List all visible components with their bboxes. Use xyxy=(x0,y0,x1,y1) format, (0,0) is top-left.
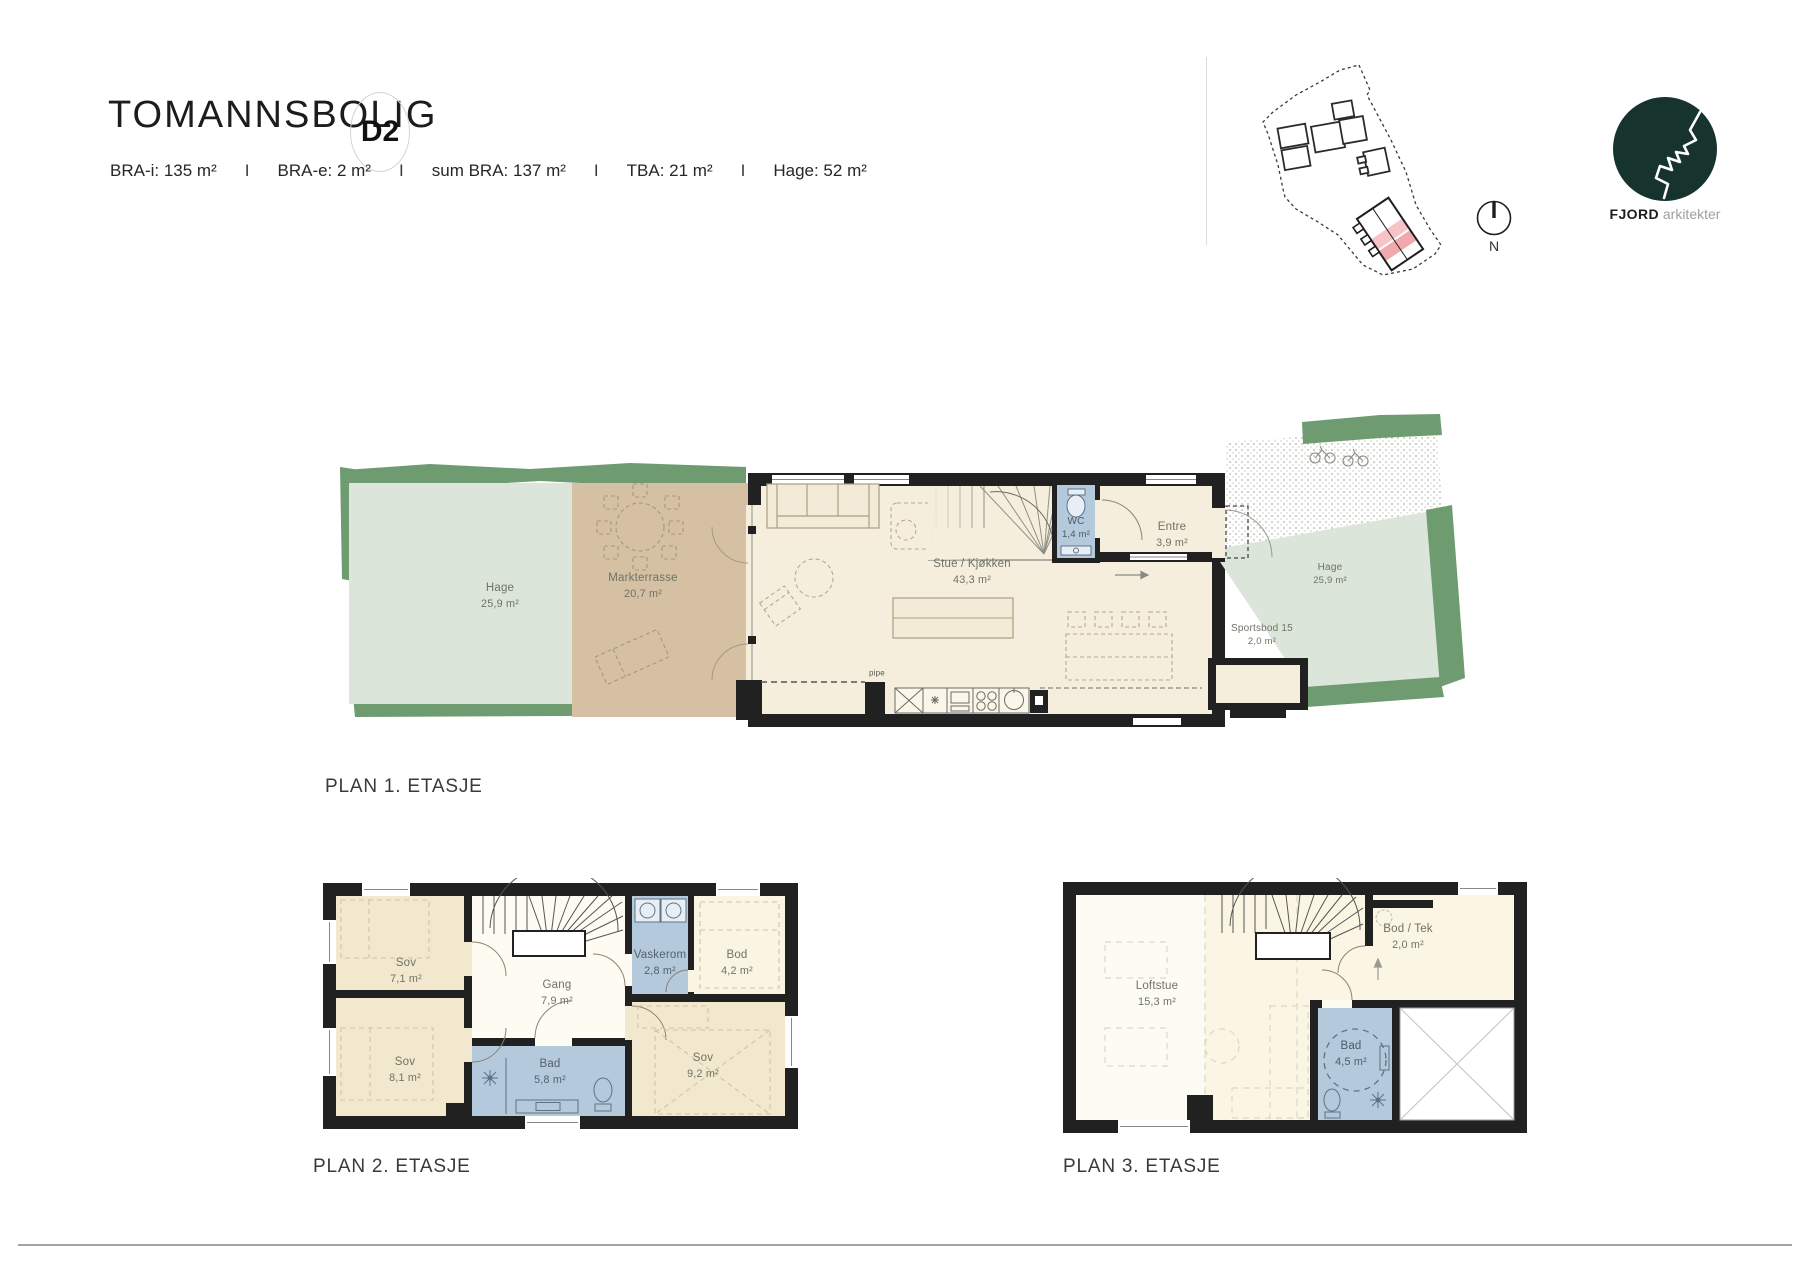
washer-dryer xyxy=(635,899,686,922)
fjord-logo-icon xyxy=(1612,96,1718,202)
room-label-bod-tek: Bod / Tek2,0 m² xyxy=(1383,922,1433,952)
unit-badge: D2 xyxy=(350,92,410,172)
spec-separator: I xyxy=(399,161,404,181)
room-label-hage-right: Hage25,9 m² xyxy=(1313,561,1347,587)
spec-bra-i: BRA-i: 135 m² xyxy=(110,161,217,181)
room-label-sov3: Sov9,2 m² xyxy=(687,1051,719,1081)
room-label-sov2: Sov8,1 m² xyxy=(389,1055,421,1085)
plan1: Hage25,9 m² Markterrasse20,7 m² Stue / K… xyxy=(340,400,1465,735)
spec-separator: I xyxy=(741,161,746,181)
room-label-entre: Entre3,9 m² xyxy=(1156,520,1188,550)
plan1-drawing xyxy=(340,400,1465,735)
footer-divider xyxy=(18,1244,1792,1246)
plan1-title: PLAN 1. ETASJE xyxy=(325,776,483,798)
logo-suffix: arkitekter xyxy=(1663,206,1721,222)
plan-sheet: TOMANNSBOLIG D2 BRA-i: 135 m² I BRA-e: 2… xyxy=(0,0,1810,1280)
spec-separator: I xyxy=(594,161,599,181)
plan3-drawing xyxy=(1060,878,1530,1138)
unit-badge-label: D2 xyxy=(361,115,399,149)
spec-sum-bra: sum BRA: 137 m² xyxy=(432,161,566,181)
room-label-sov1: Sov7,1 m² xyxy=(390,956,422,986)
annotation-pipe: pipe xyxy=(869,669,885,680)
room-label-markterrasse: Markterrasse20,7 m² xyxy=(608,571,678,601)
plan2-title: PLAN 2. ETASJE xyxy=(313,1156,471,1178)
room-label-hage-left: Hage25,9 m² xyxy=(481,581,519,611)
plan2: Sov7,1 m² Gang7,9 m² Vaskerom2,8 m² Bod4… xyxy=(320,878,805,1136)
room-label-stue-kjokken: Stue / Kjøkken43,3 m² xyxy=(933,557,1011,587)
room-label-sportsbod: Sportsbod 152,0 m² xyxy=(1231,622,1293,648)
room-label-bad3: Bad4,5 m² xyxy=(1335,1039,1367,1069)
logo-wordmark: FJORD arkitekter xyxy=(1596,206,1734,222)
logo-name: FJORD xyxy=(1610,206,1659,222)
spec-separator: I xyxy=(245,161,250,181)
site-buildings xyxy=(1277,100,1389,177)
area-specs: BRA-i: 135 m² I BRA-e: 2 m² I sum BRA: 1… xyxy=(110,161,867,181)
room-label-vaskerom: Vaskerom2,8 m² xyxy=(634,948,687,978)
spec-tba: TBA: 21 m² xyxy=(627,161,713,181)
room-label-bad2: Bad5,8 m² xyxy=(534,1057,566,1087)
spec-hage: Hage: 52 m² xyxy=(773,161,867,181)
spec-bra-e: BRA-e: 2 m² xyxy=(277,161,371,181)
north-arrow-icon xyxy=(1470,196,1518,240)
plan3-title: PLAN 3. ETASJE xyxy=(1063,1156,1221,1178)
room-label-gang: Gang7,9 m² xyxy=(541,978,573,1008)
north-label: N xyxy=(1470,238,1518,254)
room-label-wc: WC1,4 m² xyxy=(1062,515,1090,541)
room-label-bod: Bod4,2 m² xyxy=(721,948,753,978)
header-divider xyxy=(1206,57,1207,245)
sofa xyxy=(767,484,879,528)
plan3: Loftstue15,3 m² Bod / Tek2,0 m² Bad4,5 m… xyxy=(1060,878,1530,1138)
room-label-loftstue: Loftstue15,3 m² xyxy=(1136,979,1179,1009)
